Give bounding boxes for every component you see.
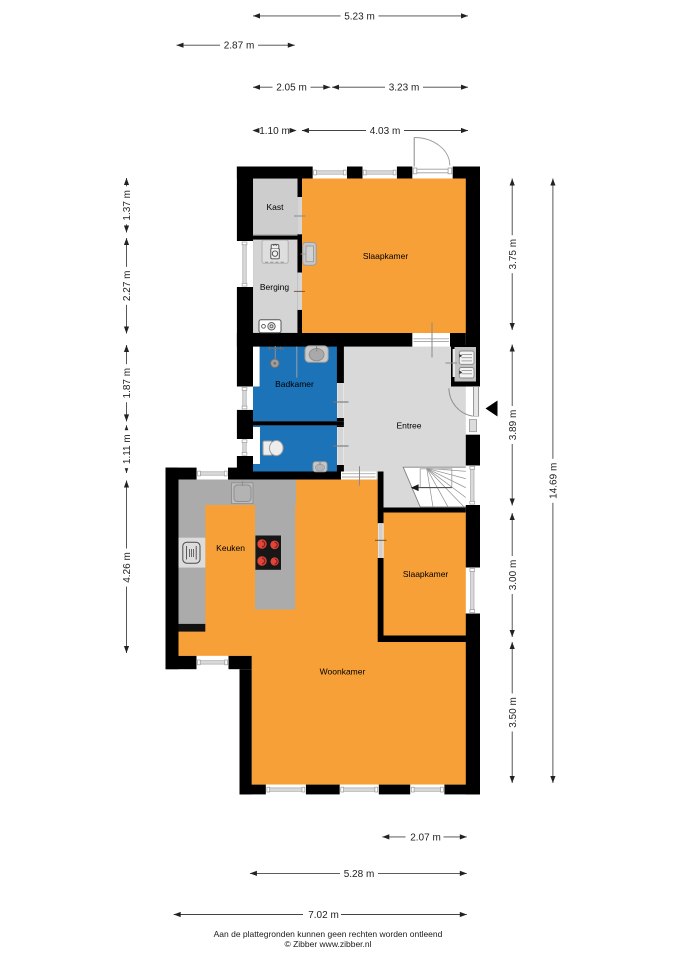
svg-text:Woonkamer: Woonkamer bbox=[320, 667, 366, 677]
svg-text:Slaapkamer: Slaapkamer bbox=[363, 251, 409, 261]
svg-text:5.28 m: 5.28 m bbox=[344, 869, 375, 880]
svg-text:2.27 m: 2.27 m bbox=[122, 271, 133, 302]
svg-text:14.69 m: 14.69 m bbox=[549, 463, 560, 499]
svg-text:1.10 m: 1.10 m bbox=[259, 126, 290, 137]
svg-text:Badkamer: Badkamer bbox=[275, 379, 314, 389]
svg-text:2.07 m: 2.07 m bbox=[410, 832, 441, 843]
svg-text:1.87 m: 1.87 m bbox=[122, 368, 133, 399]
svg-text:2.05 m: 2.05 m bbox=[276, 83, 307, 94]
svg-text:2.87 m: 2.87 m bbox=[224, 41, 255, 52]
svg-text:Aan de plattegronden kunnen ge: Aan de plattegronden kunnen geen rechten… bbox=[214, 929, 443, 939]
svg-text:© Zibber www.zibber.nl: © Zibber www.zibber.nl bbox=[284, 939, 371, 949]
svg-text:5.23 m: 5.23 m bbox=[344, 11, 375, 22]
svg-text:Entree: Entree bbox=[396, 421, 421, 431]
svg-text:Slaapkamer: Slaapkamer bbox=[403, 569, 449, 579]
svg-text:4.03 m: 4.03 m bbox=[370, 126, 401, 137]
svg-text:1.37 m: 1.37 m bbox=[122, 190, 133, 221]
svg-text:3.75 m: 3.75 m bbox=[508, 239, 519, 270]
svg-text:Berging: Berging bbox=[260, 282, 290, 292]
svg-text:4.26 m: 4.26 m bbox=[122, 552, 133, 583]
svg-text:3.50 m: 3.50 m bbox=[508, 697, 519, 728]
svg-text:Kast: Kast bbox=[266, 202, 284, 212]
svg-text:1.11 m: 1.11 m bbox=[122, 434, 133, 464]
svg-text:3.00 m: 3.00 m bbox=[508, 560, 519, 591]
svg-text:Keuken: Keuken bbox=[216, 543, 245, 553]
svg-text:7.02 m: 7.02 m bbox=[308, 910, 339, 921]
svg-text:3.23 m: 3.23 m bbox=[389, 83, 420, 94]
svg-text:3.89 m: 3.89 m bbox=[508, 410, 519, 441]
